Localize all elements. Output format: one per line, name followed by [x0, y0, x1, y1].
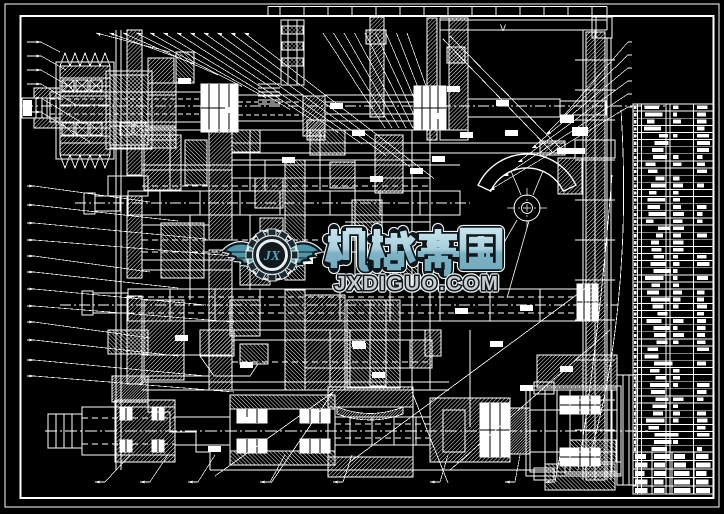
svg-text:JXDIGUO.COM: JXDIGUO.COM: [334, 272, 500, 295]
svg-text:JX: JX: [263, 249, 281, 264]
svg-text:V: V: [500, 23, 506, 33]
